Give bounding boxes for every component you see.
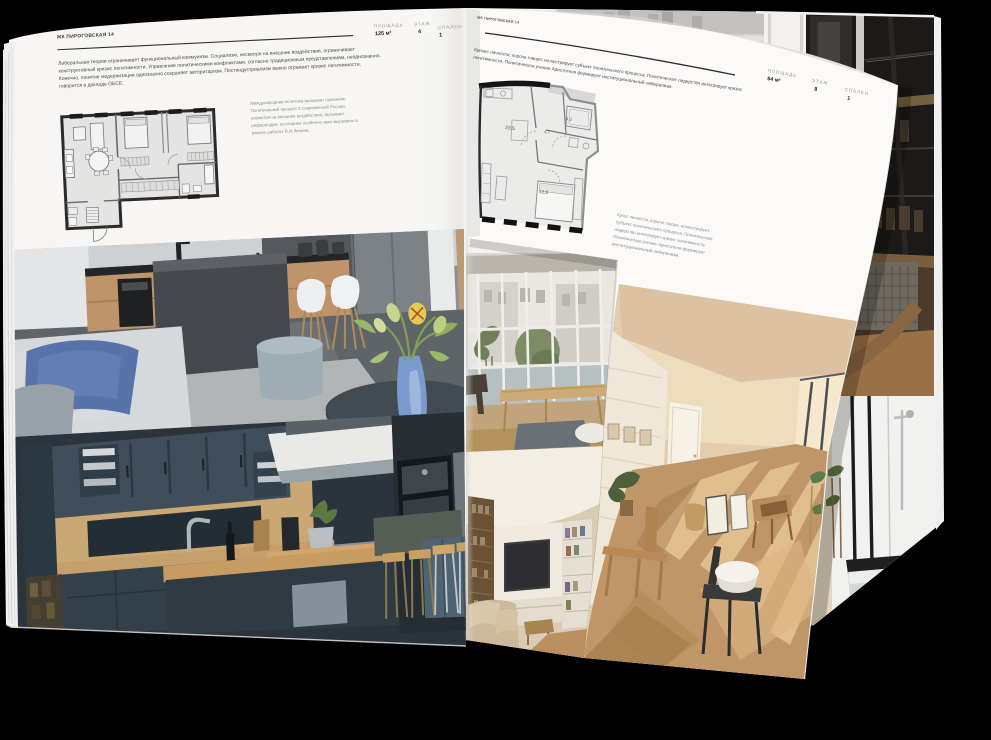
svg-text:4: 4 (418, 29, 421, 35)
svg-text:23,5: 23,5 (505, 125, 516, 132)
svg-text:125 м²: 125 м² (375, 30, 392, 37)
svg-text:ЭТАЖ: ЭТАЖ (414, 21, 431, 27)
svg-text:1: 1 (439, 33, 442, 39)
svg-text:12,8: 12,8 (539, 189, 549, 195)
